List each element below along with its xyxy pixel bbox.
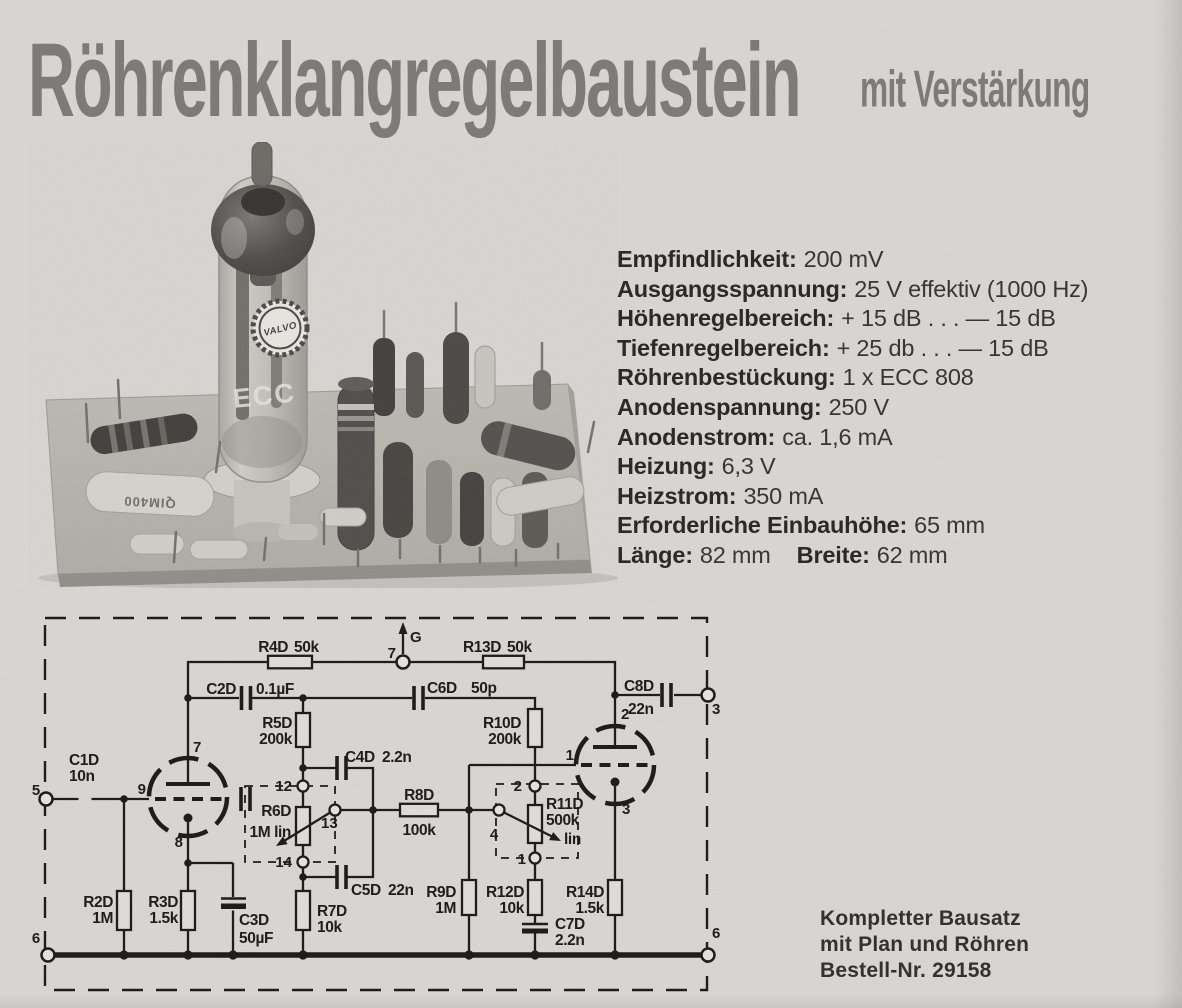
spec-row: Tiefenregelbereich:+ 25 db . . . — 15 dB: [617, 335, 1088, 365]
label-r14d-ref: R14D: [566, 884, 604, 901]
order-line-1: Kompletter Bausatz: [820, 906, 1029, 932]
node-4: [494, 805, 505, 816]
spec-row: Länge:82 mmBreite:62 mm: [617, 542, 1088, 572]
spec-value: 62 mm: [877, 542, 948, 568]
label-r5d-val: 200k: [259, 731, 293, 748]
terminal-6-right: [702, 949, 715, 962]
spec-row: Anodenspannung:250 V: [617, 394, 1088, 424]
catalog-page: Röhrenklangregelbaustein mit Verstärkung: [0, 0, 1182, 1008]
label-c8d-val: 22n: [628, 701, 654, 718]
terminal-7: [397, 656, 410, 669]
label-tube1-grid: 9: [138, 781, 146, 798]
spec-label: Anodenspannung:: [617, 394, 822, 420]
label-supply-rail: G: [410, 629, 422, 646]
page-title: Röhrenklangregelbaustein: [28, 20, 800, 141]
label-c1d-ref: C1D: [69, 752, 99, 769]
page-subtitle: mit Verstärkung: [860, 60, 1090, 119]
spec-value: 200 mV: [804, 246, 884, 272]
spec-label: Empfindlichkeit:: [617, 246, 797, 272]
node-14: [298, 857, 309, 868]
spec-list: Empfindlichkeit:200 mVAusgangsspannung:2…: [617, 246, 1088, 572]
c3d-plate: [221, 904, 246, 910]
spec-label: Tiefenregelbereich:: [617, 335, 830, 361]
spec-value: 65 mm: [914, 512, 985, 538]
label-r7d-val: 10k: [317, 919, 342, 936]
label-r3d-val: 1.5k: [149, 910, 178, 927]
label-pot2-wiper: 4: [490, 826, 499, 843]
label-r6d-val: 1M lin: [249, 824, 291, 841]
module-photo: VALVO ECC QIM400: [28, 142, 618, 588]
label-tube2-grid: 1: [566, 747, 574, 764]
node-2: [530, 781, 541, 792]
spec-pair: Anodenspannung:250 V: [617, 394, 889, 421]
spec-value: 82 mm: [700, 542, 771, 568]
label-terminal-3: 3: [712, 701, 720, 718]
label-c5d-val: 22n: [388, 882, 414, 899]
spec-row: Erforderliche Einbauhöhe:65 mm: [617, 512, 1088, 542]
spec-pair: Röhrenbestückung:1 x ECC 808: [617, 364, 974, 391]
label-r9d-ref: R9D: [426, 884, 456, 901]
resistor-R7D: [296, 891, 310, 930]
label-c6d-ref: C6D: [427, 680, 457, 697]
label-c8d-ref: C8D: [624, 678, 654, 695]
label-r5d-ref: R5D: [262, 715, 292, 732]
resistor-R13D: [483, 656, 524, 669]
spec-pair: Länge:82 mm: [617, 542, 771, 569]
spec-row: Heizung:6,3 V: [617, 453, 1088, 483]
spec-pair: Empfindlichkeit:200 mV: [617, 246, 883, 273]
label-c4d-ref: C4D: [345, 749, 375, 766]
spec-value: 25 V effektiv (1000 Hz): [854, 276, 1088, 302]
schematic-diagram: C1D 10n C2D 0.1µF C6D 50p C8D 22n R4D 50…: [25, 598, 725, 1008]
label-tube1-cathode: 8: [175, 834, 183, 851]
label-pot1-bottom: 14: [275, 854, 292, 871]
spec-label: Erforderliche Einbauhöhe:: [617, 512, 907, 538]
terminal-6-left: [42, 949, 55, 962]
resistor-R8D: [400, 804, 438, 817]
resistor-R3D: [181, 891, 195, 930]
label-r12d-ref: R12D: [486, 884, 524, 901]
terminal-3: [702, 689, 715, 702]
label-c7d-val: 2.2n: [555, 932, 584, 949]
label-r2d-val: 1M: [92, 910, 113, 927]
label-r2d-ref: R2D: [83, 894, 113, 911]
spec-row: Anodenstrom:ca. 1,6 mA: [617, 424, 1088, 454]
label-pot1-top: 12: [275, 778, 292, 795]
resistor-R14D: [608, 880, 622, 915]
spec-pair: Anodenstrom:ca. 1,6 mA: [617, 424, 893, 451]
label-r13d-val: 50k: [507, 639, 532, 656]
spec-value: 6,3 V: [722, 453, 776, 479]
spec-label: Höhenregelbereich:: [617, 305, 834, 331]
label-r14d-val: 1.5k: [575, 900, 604, 917]
label-tube2-cathode: 3: [622, 801, 630, 818]
spec-pair: Breite:62 mm: [797, 542, 948, 569]
spec-pair: Heizung:6,3 V: [617, 453, 776, 480]
label-r3d-ref: R3D: [148, 894, 178, 911]
terminal-5: [40, 793, 53, 806]
spec-pair: Tiefenregelbereich:+ 25 db . . . — 15 dB: [617, 335, 1049, 362]
node-12: [298, 781, 309, 792]
spec-row: Röhrenbestückung:1 x ECC 808: [617, 364, 1088, 394]
label-c4d-val: 2.2n: [382, 749, 411, 766]
label-pot2-bottom: 1: [518, 851, 526, 868]
label-c2d-ref: C2D: [206, 681, 236, 698]
label-c7d-ref: C7D: [555, 916, 585, 933]
spec-row: Höhenregelbereich:+ 15 dB . . . — 15 dB: [617, 305, 1088, 335]
label-c3d-val: 50µF: [239, 930, 273, 947]
c7d-plate: [522, 929, 548, 934]
spec-pair: Ausgangsspannung:25 V effektiv (1000 Hz): [617, 276, 1088, 303]
label-r8d-val: 100k: [403, 822, 437, 839]
spec-row: Ausgangsspannung:25 V effektiv (1000 Hz): [617, 276, 1088, 306]
photo-grain: [28, 142, 618, 588]
spec-label: Ausgangsspannung:: [617, 276, 847, 302]
label-terminal-6-left: 6: [32, 930, 40, 947]
supply-arrow: [399, 622, 408, 654]
label-r9d-val: 1M: [435, 900, 456, 917]
spec-label: Heizung:: [617, 453, 715, 479]
spec-pair: Höhenregelbereich:+ 15 dB . . . — 15 dB: [617, 305, 1056, 332]
label-r6d-ref: R6D: [261, 803, 291, 820]
label-r11d-ref: R11D: [546, 796, 583, 813]
label-c6d-val: 50p: [471, 680, 497, 697]
label-r13d-ref: R13D: [463, 639, 501, 656]
spec-label: Breite:: [797, 542, 870, 568]
label-r8d-ref: R8D: [404, 787, 434, 804]
node-13: [330, 805, 341, 816]
order-line-2: mit Plan und Röhren: [820, 932, 1029, 958]
label-tube2-anode: 2: [621, 706, 629, 723]
label-r10d-ref: R10D: [483, 715, 521, 732]
spec-row: Empfindlichkeit:200 mV: [617, 246, 1088, 276]
resistor-R12D: [528, 880, 542, 915]
order-line-3: Bestell-Nr. 29158: [820, 958, 1029, 984]
node-1: [530, 853, 541, 864]
page-edge-shade: [1154, 0, 1182, 1008]
spec-pair: Erforderliche Einbauhöhe:65 mm: [617, 512, 985, 539]
label-terminal-5: 5: [32, 782, 40, 799]
spec-value: 250 V: [829, 394, 889, 420]
label-r11d-val: 500k: [546, 812, 580, 829]
label-tube1-anode: 7: [193, 739, 201, 756]
spec-label: Anodenstrom:: [617, 424, 775, 450]
spec-label: Heizstrom:: [617, 483, 736, 509]
label-r10d-val: 200k: [488, 731, 522, 748]
label-terminal-7: 7: [388, 645, 396, 662]
label-terminal-6-right: 6: [712, 925, 720, 942]
spec-value: 1 x ECC 808: [843, 364, 974, 390]
spec-label: Röhrenbestückung:: [617, 364, 836, 390]
order-info: Kompletter Bausatz mit Plan und Röhren B…: [820, 906, 1029, 984]
resistor-R5D: [296, 713, 310, 747]
label-r4d-ref: R4D: [258, 639, 288, 656]
spec-value: + 15 dB . . . — 15 dB: [841, 305, 1056, 331]
resistor-R9D: [462, 880, 476, 915]
label-r7d-ref: R7D: [317, 903, 347, 920]
label-pot1-wiper: 13: [321, 815, 338, 832]
label-c3d-ref: C3D: [239, 912, 269, 929]
resistor-R2D: [117, 891, 131, 930]
label-r4d-val: 50k: [294, 639, 319, 656]
resistor-R4D: [268, 656, 312, 669]
resistor-R10D: [528, 709, 542, 747]
label-c5d-ref: C5D: [351, 882, 381, 899]
spec-label: Länge:: [617, 542, 693, 568]
label-r12d-val: 10k: [499, 900, 524, 917]
resistor-R11D: [528, 805, 542, 843]
label-r11d-taper: lin: [564, 831, 581, 848]
label-pot2-top: 2: [514, 778, 522, 795]
label-c1d-val: 10n: [69, 768, 95, 785]
spec-row: Heizstrom:350 mA: [617, 483, 1088, 513]
spec-value: + 25 db . . . — 15 dB: [837, 335, 1049, 361]
label-c2d-val: 0.1µF: [256, 681, 294, 698]
spec-value: 350 mA: [743, 483, 823, 509]
spec-value: ca. 1,6 mA: [782, 424, 892, 450]
spec-pair: Heizstrom:350 mA: [617, 483, 823, 510]
